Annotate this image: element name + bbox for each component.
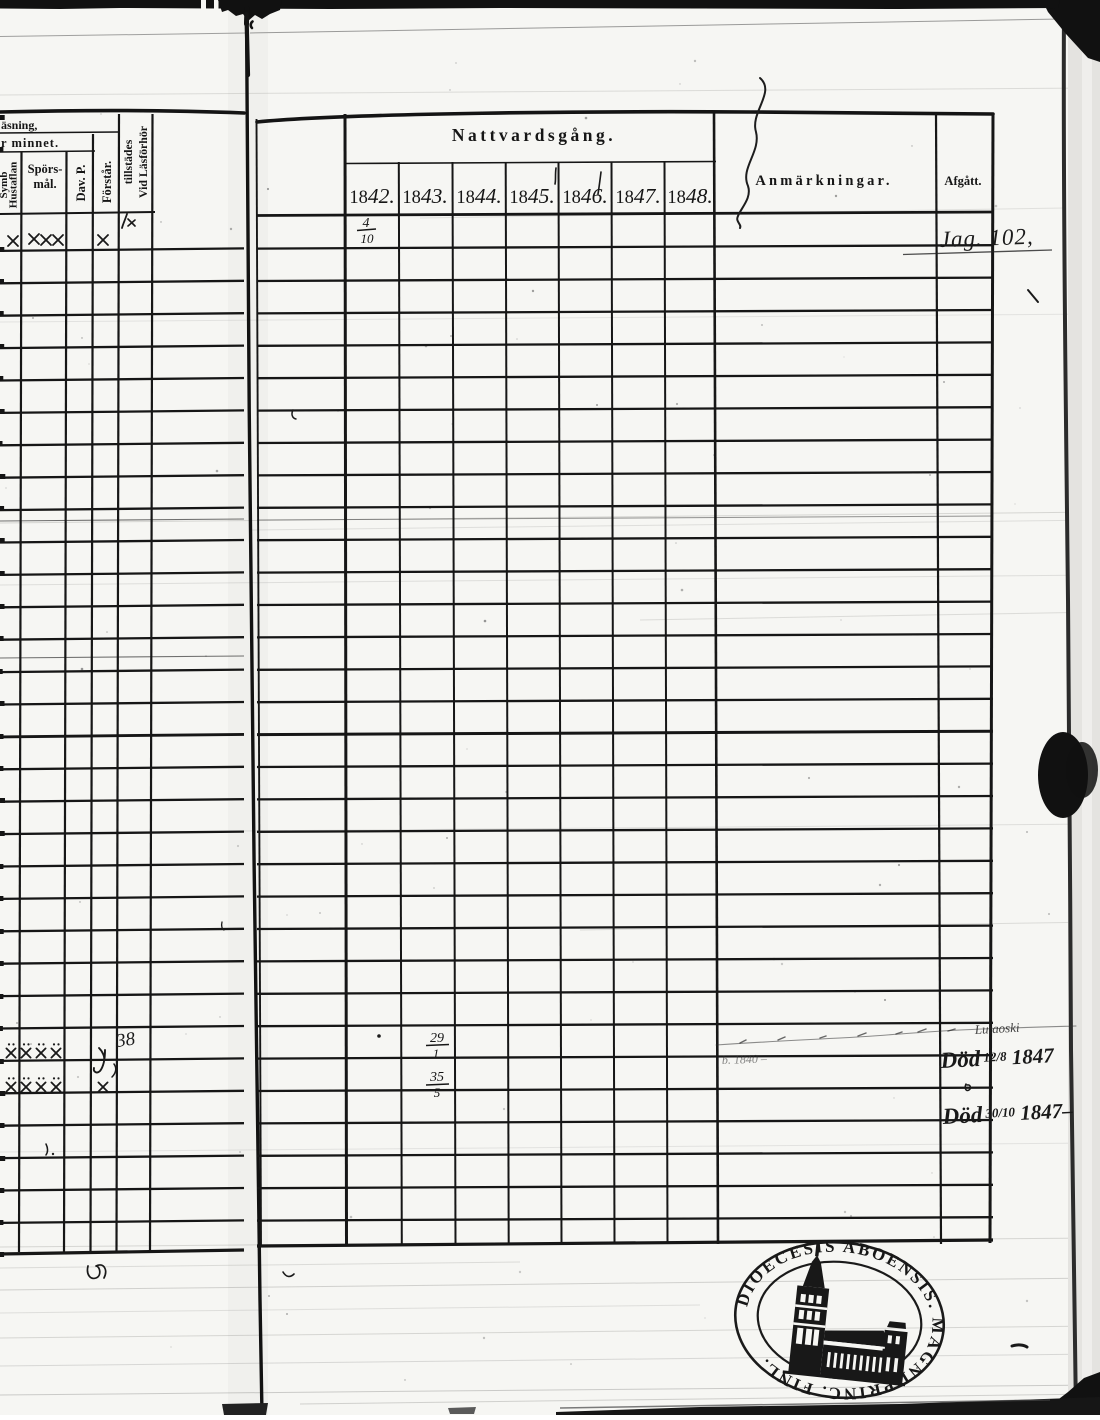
svg-text:29: 29 — [430, 1031, 444, 1046]
svg-text:Vid Läsförhör: Vid Läsförhör — [136, 126, 150, 198]
svg-text:35: 35 — [429, 1070, 444, 1085]
svg-text:Förstår.: Förstår. — [100, 161, 114, 203]
svg-text:Afgått.: Afgått. — [944, 174, 981, 188]
svg-text:1842.: 1842. — [349, 184, 394, 208]
svg-text:Spörs-: Spörs- — [28, 162, 63, 176]
svg-text:5: 5 — [434, 1085, 441, 1100]
svg-text:Jag. 102,: Jag. 102, — [939, 224, 1034, 252]
svg-text:38: 38 — [114, 1028, 137, 1052]
svg-text:4: 4 — [363, 216, 370, 231]
svg-text:Anmärkningar.: Anmärkningar. — [755, 173, 892, 189]
svg-text:1: 1 — [433, 1046, 440, 1061]
svg-text:1848.: 1848. — [667, 184, 712, 208]
svg-text:1843.: 1843. — [402, 184, 447, 208]
svg-text:tillstädes: tillstädes — [121, 139, 135, 184]
svg-text:1847.: 1847. — [615, 184, 660, 208]
svg-text:10: 10 — [361, 231, 375, 246]
svg-text:1845.: 1845. — [509, 184, 554, 208]
svg-text:b. 1840 –: b. 1840 – — [722, 1051, 768, 1067]
svg-text:Dav. P.: Dav. P. — [74, 165, 88, 202]
svg-text:mål.: mål. — [33, 177, 56, 191]
svg-text:Lutaoski: Lutaoski — [973, 1020, 1020, 1037]
svg-text:1846.: 1846. — [562, 184, 607, 208]
svg-text:äsning,: äsning, — [1, 118, 37, 132]
svg-text:1844.: 1844. — [456, 184, 501, 208]
svg-text:Hustaflan: Hustaflan — [8, 162, 20, 208]
svg-text:Nattvardsgång.: Nattvardsgång. — [452, 125, 616, 145]
svg-text:r minnet.: r minnet. — [1, 136, 59, 150]
